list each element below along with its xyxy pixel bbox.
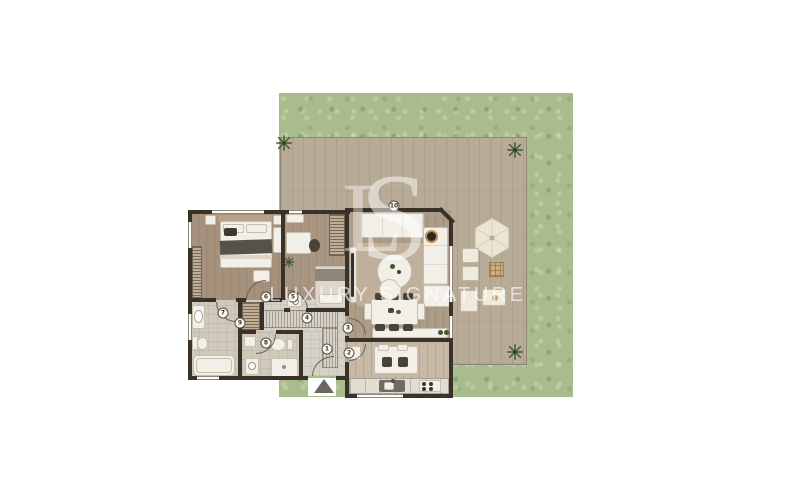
bed-fold [220, 255, 272, 259]
bed-throw [315, 269, 347, 281]
bed-throw [220, 239, 272, 255]
island-plant [438, 330, 443, 335]
sink [244, 336, 256, 347]
window [212, 210, 264, 214]
wardrobe [192, 246, 202, 298]
room-label-10: 10 [389, 201, 400, 212]
room-label-8: 8 [261, 338, 272, 349]
window [449, 316, 453, 338]
outdoor-wicker-table [489, 262, 504, 277]
window [188, 314, 192, 340]
room-label-5: 5 [288, 292, 299, 303]
kitchen-chair [378, 344, 389, 351]
dining-chair [403, 293, 413, 300]
side-table [425, 230, 438, 243]
wall [260, 302, 264, 330]
burner [429, 382, 433, 386]
table-decor [396, 310, 401, 314]
wall [281, 212, 285, 300]
burner [422, 387, 426, 391]
table-decor [390, 264, 395, 269]
shower-drain [282, 365, 286, 369]
burner [422, 382, 426, 386]
wall [345, 362, 349, 396]
wardrobe [329, 214, 345, 256]
wall [284, 308, 290, 312]
toilet-bowl [197, 337, 208, 350]
outdoor-lounger [460, 290, 478, 312]
desk [286, 232, 311, 254]
wall [347, 338, 449, 342]
plant-icon [506, 343, 524, 366]
corridor-closet [262, 310, 338, 328]
tv [351, 253, 354, 297]
dining-chair [403, 324, 413, 331]
plant-icon [275, 134, 293, 157]
desk-chair [309, 239, 320, 252]
outdoor-decor [492, 295, 498, 301]
wall [188, 298, 216, 302]
faucet [391, 379, 395, 383]
window [289, 210, 302, 214]
dining-chair [375, 324, 385, 331]
room-label-4: 4 [302, 313, 313, 324]
room-label-3: 3 [343, 323, 354, 334]
floorplan-canvas: 1 2 3 4 5 6 7 8 9 10 L S LUXURY SIGNATUR… [0, 0, 800, 500]
table-decor [397, 270, 401, 274]
wall [306, 308, 347, 312]
burner [429, 387, 433, 391]
room-label-7: 7 [218, 308, 229, 319]
wall [345, 212, 349, 316]
window [188, 222, 192, 248]
room-label-1: 1 [322, 344, 333, 355]
wall [238, 300, 242, 380]
sink-basin [384, 382, 394, 390]
pillow [246, 224, 267, 233]
dark-pillow [224, 228, 237, 236]
nightstand [205, 215, 216, 225]
terrace-glass-door [449, 246, 453, 302]
toilet-tank [287, 339, 293, 350]
window [197, 376, 219, 380]
table-decor [388, 308, 394, 313]
room-label-2: 2 [344, 348, 355, 359]
coffee-table-small [379, 279, 400, 300]
sofa [361, 213, 424, 238]
shelf [286, 214, 304, 223]
wall [299, 334, 303, 378]
outdoor-chair [462, 266, 479, 281]
room-label-6: 6 [261, 292, 272, 303]
dining-chair [389, 324, 399, 331]
room-label-9: 9 [235, 318, 246, 329]
kitchen-chair [398, 357, 408, 367]
basin [194, 310, 203, 323]
outdoor-chair [462, 248, 479, 263]
kitchen-chair [382, 357, 392, 367]
dining-chair [417, 303, 425, 320]
plant-icon [506, 141, 524, 164]
pillow [319, 294, 343, 304]
dining-table [371, 299, 418, 325]
window [357, 394, 403, 398]
bathtub-basin [196, 358, 232, 373]
wall [242, 330, 256, 334]
entrance-arrow-icon [314, 379, 334, 393]
kitchen-chair [397, 344, 408, 351]
washer-door [248, 362, 256, 370]
sofa-chaise [423, 285, 450, 307]
